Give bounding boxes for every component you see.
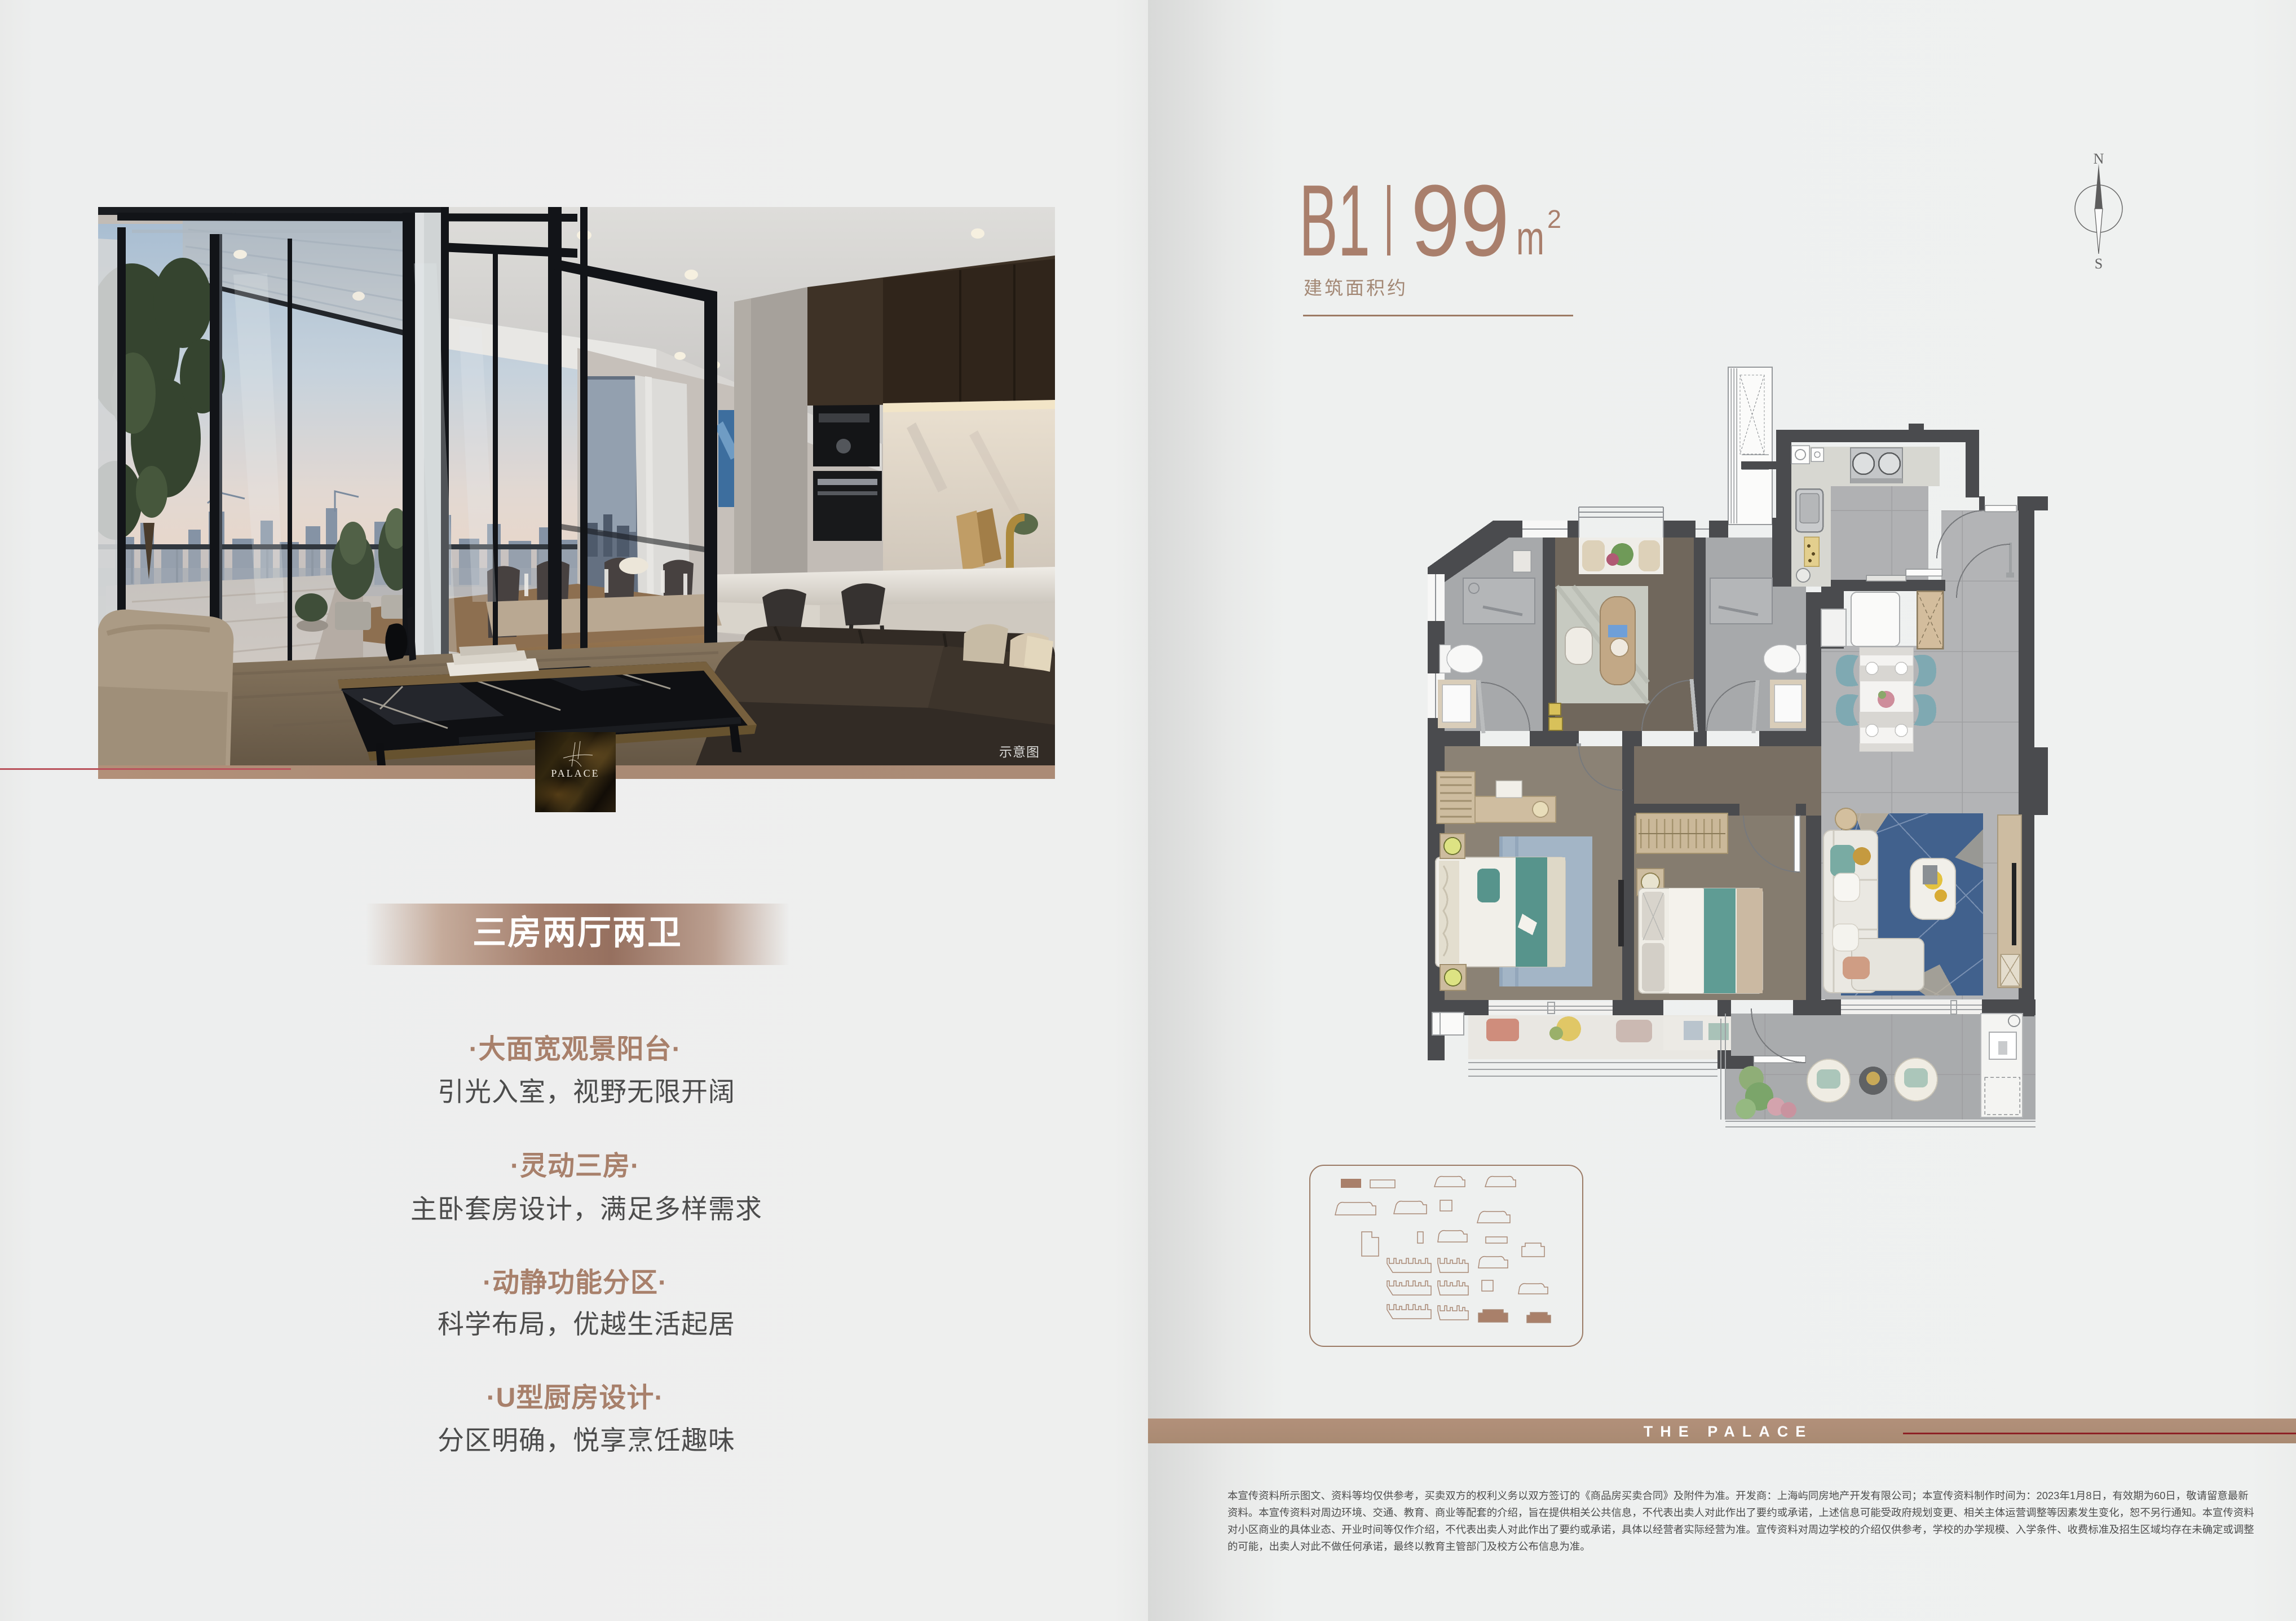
svg-text:m: m xyxy=(1516,212,1544,265)
svg-text:99: 99 xyxy=(1411,169,1509,271)
svg-text:2: 2 xyxy=(1547,205,1561,234)
svg-text:B1: B1 xyxy=(1299,169,1370,271)
svg-text:S: S xyxy=(2095,256,2103,272)
